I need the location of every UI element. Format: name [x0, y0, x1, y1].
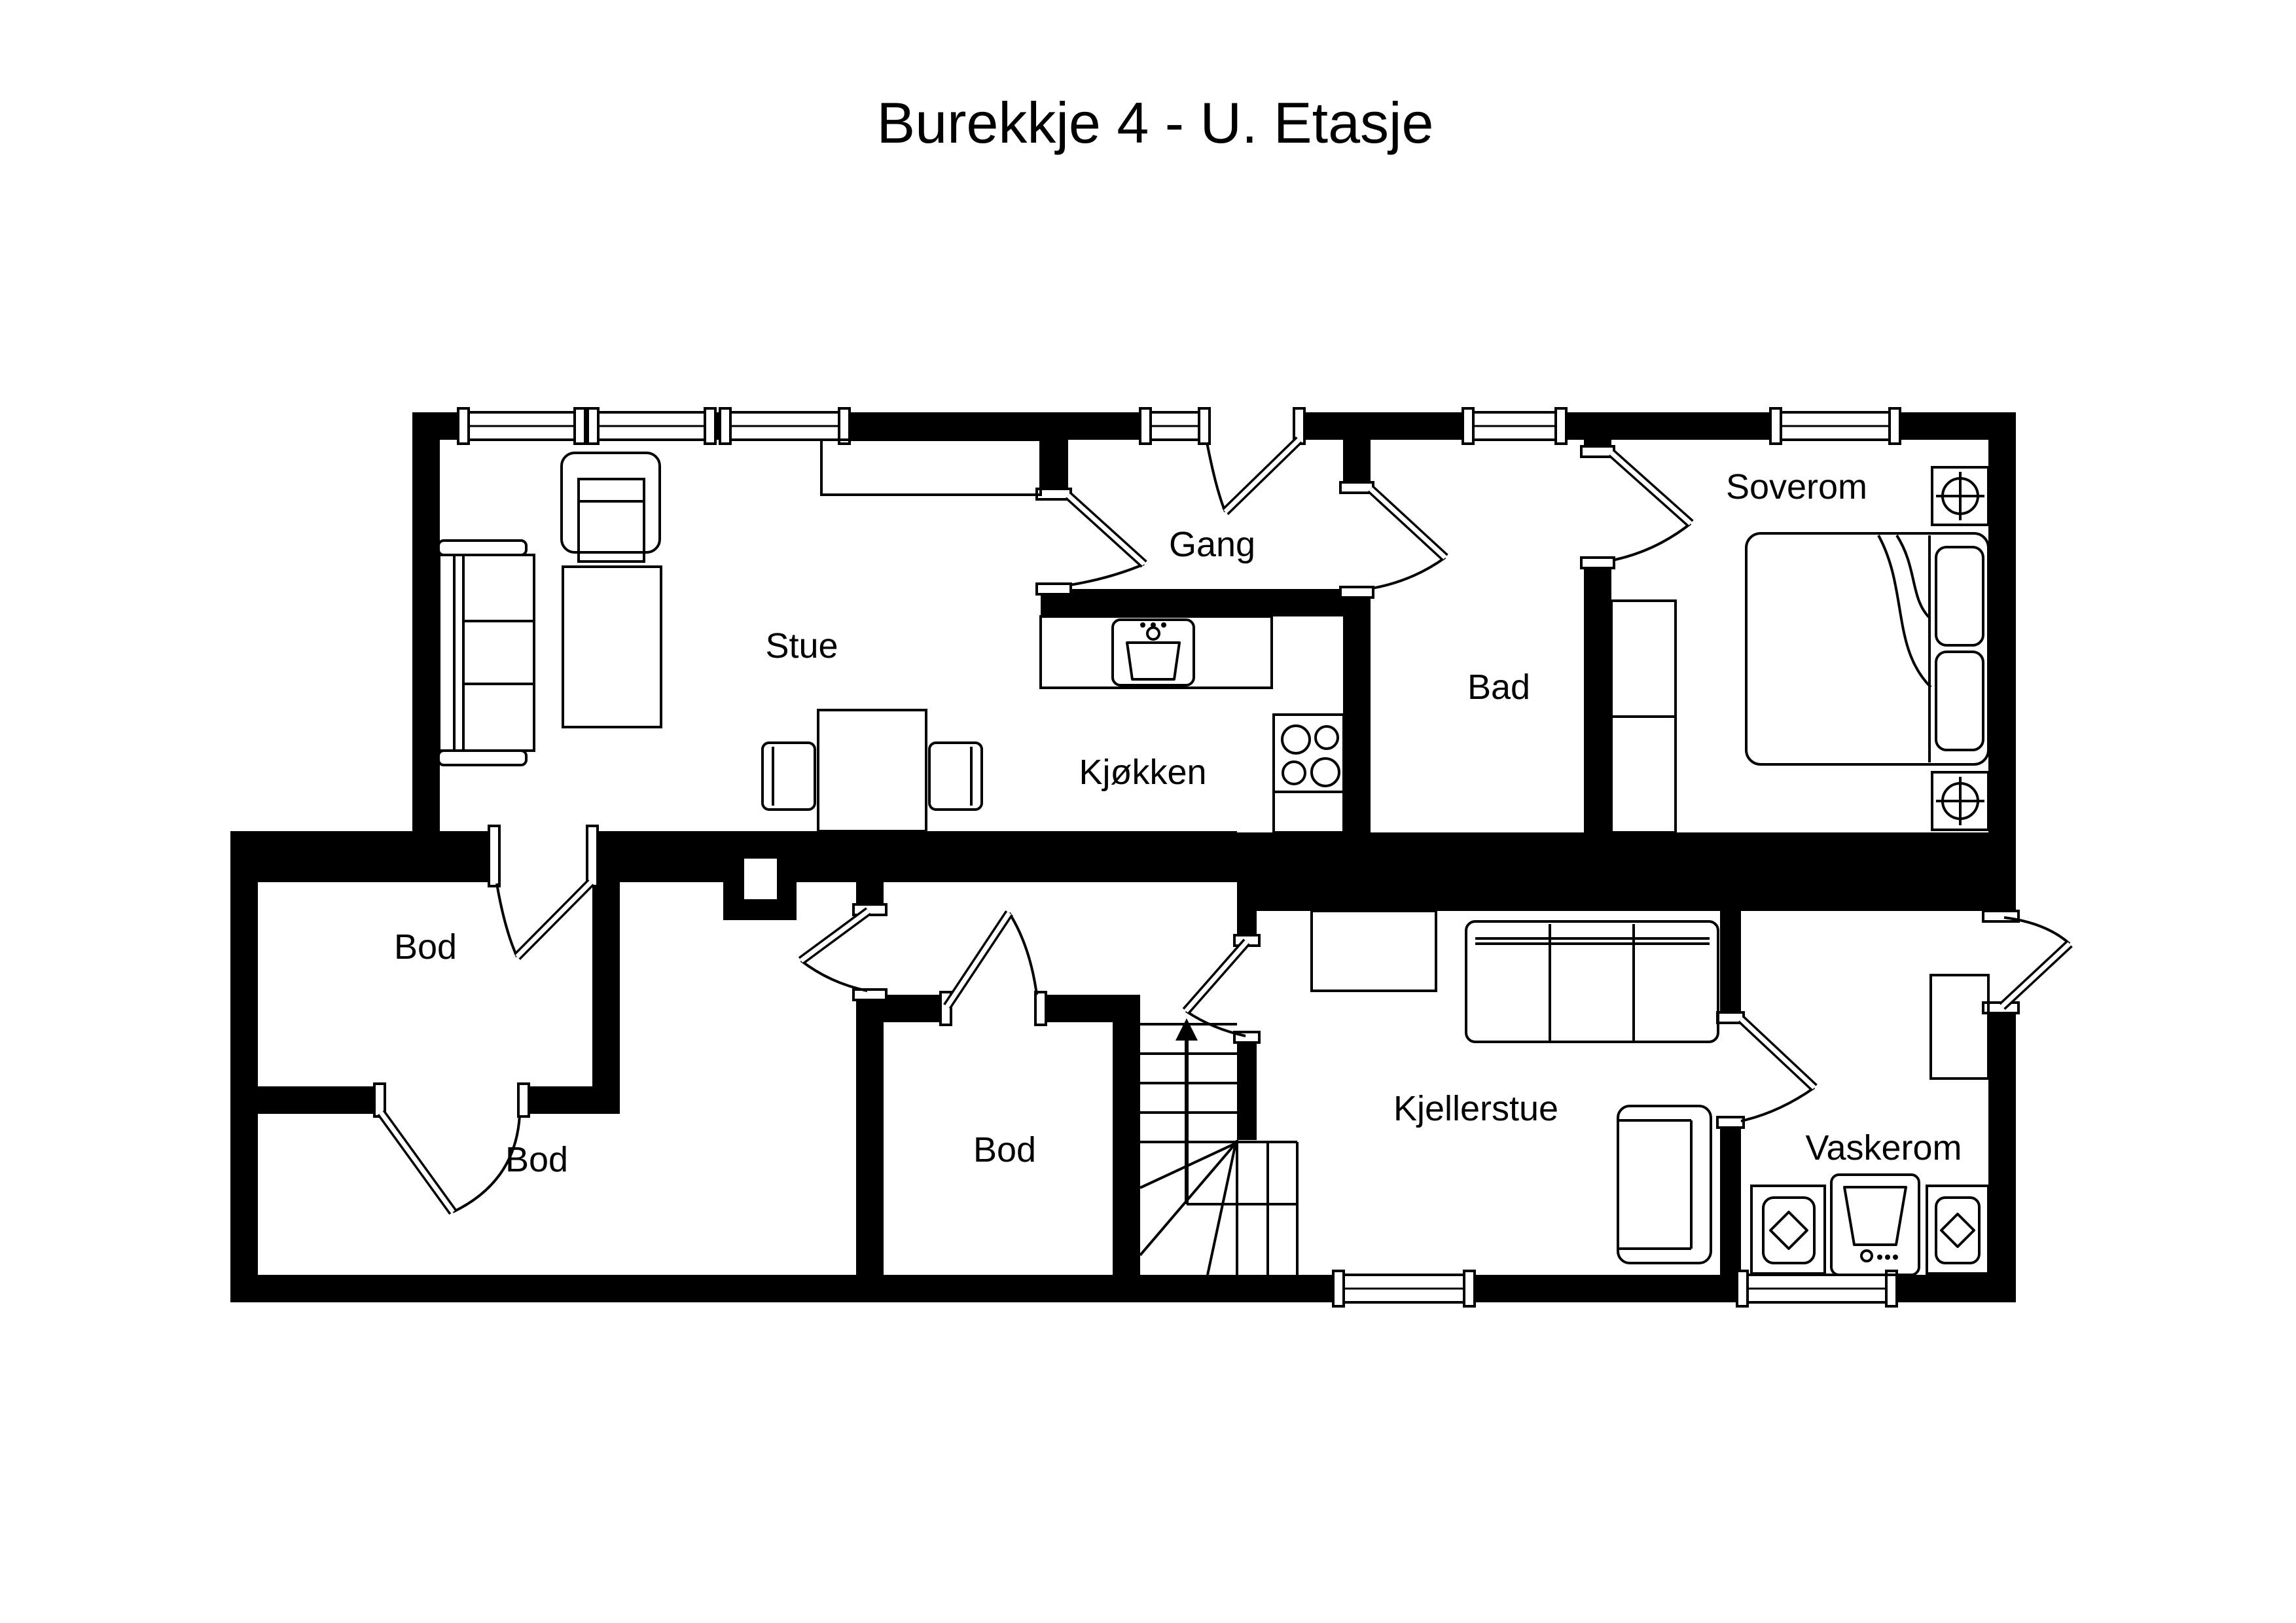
wall-gang-bad-lower	[1343, 592, 1371, 832]
window-kjellerstue	[1333, 1271, 1475, 1306]
wall-bod1-bottom-right	[524, 1086, 620, 1114]
room-bod-2: Bod	[505, 1140, 568, 1179]
wall-bod1-right	[592, 882, 620, 1114]
wall-bad-soverom-lower	[1584, 563, 1611, 832]
window-gang	[1140, 408, 1204, 444]
wall-divider-right	[1237, 832, 2016, 911]
wall-bod3-left	[856, 995, 884, 1275]
window-stue-2	[588, 408, 715, 444]
chimney-notch	[744, 859, 777, 899]
page-background	[0, 0, 2296, 1623]
room-label-bad: Bad	[1467, 668, 1530, 707]
window-stue-3	[720, 408, 850, 444]
window-stue-1	[458, 408, 585, 444]
wall-divider-left	[230, 831, 1237, 882]
room-label-bod2: Bod	[505, 1140, 568, 1179]
room-gang: Gang	[1169, 525, 1255, 564]
room-label-stue: Stue	[765, 626, 838, 666]
plan-title: Burekkje 4 - U. Etasje	[877, 90, 1434, 155]
floor-plan: Stue Gang Kjøkken Bad	[0, 0, 2296, 1623]
room-label-kjellerstue: Kjellerstue	[1393, 1089, 1558, 1128]
window-bad	[1463, 408, 1566, 444]
window-vaskerom	[1737, 1271, 1897, 1306]
room-bod-1: Bod	[394, 927, 457, 967]
wall-left-lower	[230, 831, 258, 1302]
wall-bod3-top-right	[1041, 995, 1113, 1022]
room-label-kjokken: Kjøkken	[1079, 753, 1206, 792]
room-bad: Bad	[1467, 668, 1530, 707]
window-soverom	[1770, 408, 1900, 444]
wall-bod3-top-left	[884, 995, 946, 1022]
wall-gang-bad-upper	[1343, 412, 1371, 488]
wall-gang-kjokken	[1041, 589, 1343, 616]
wall-bod1-bottom-left	[258, 1086, 380, 1114]
wall-vaskerom-left-upper	[1720, 911, 1741, 1018]
wall-vaskerom-left-lower	[1720, 1122, 1741, 1275]
wall-kjellerstue-left-lower	[1237, 1037, 1257, 1140]
room-label-gang: Gang	[1169, 525, 1255, 564]
wall-stairs-left	[1113, 995, 1140, 1275]
room-label-bod3: Bod	[973, 1130, 1036, 1169]
wall-stue-gang	[1041, 412, 1068, 494]
wall-left-upper	[412, 412, 440, 882]
room-label-vaskerom: Vaskerom	[1805, 1128, 1962, 1168]
room-label-soverom: Soverom	[1726, 467, 1867, 507]
room-label-bod1: Bod	[394, 927, 457, 967]
room-bod-3: Bod	[973, 1130, 1036, 1169]
